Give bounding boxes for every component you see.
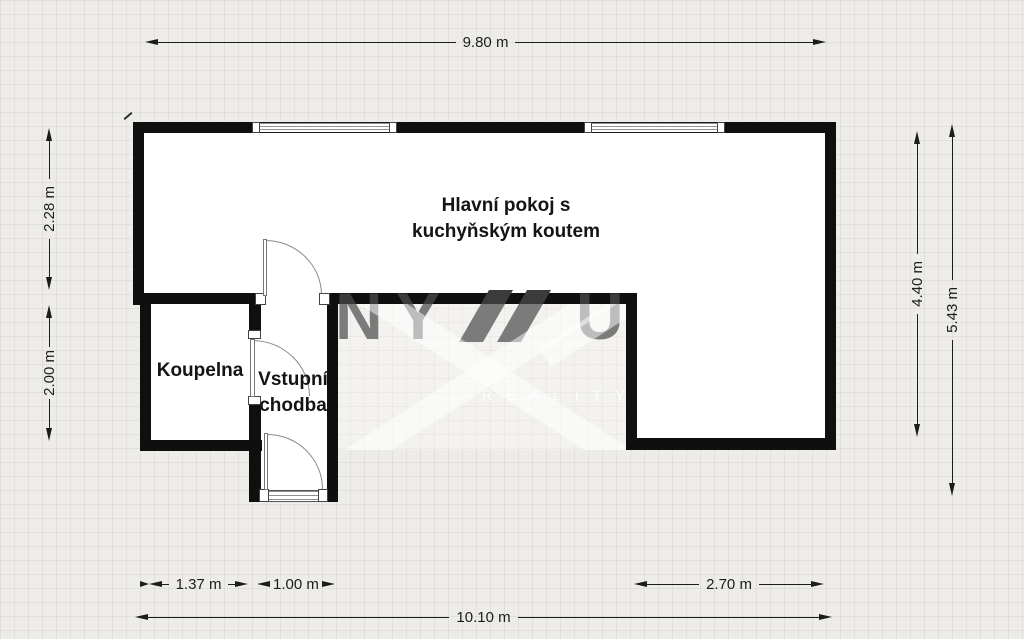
- wall-bathroom-top: [133, 293, 259, 304]
- wall-extension-bottom: [626, 438, 836, 450]
- floorplan-canvas: N Y U REALITY Hlavní pokoj s kuchyňským …: [0, 0, 1024, 639]
- dim-extension-width: 2.70 m: [634, 577, 824, 591]
- hall-main-door-frame-right: [319, 293, 330, 305]
- arrow-up-icon: [949, 124, 955, 137]
- watermark-white-overlay: [338, 304, 626, 450]
- window-1-left-jamb: [252, 122, 260, 133]
- entry-door-frame-left: [259, 489, 269, 502]
- dim-left-upper-label: 2.28 m: [41, 179, 58, 239]
- dim-bottom-width: 10.10 m: [135, 610, 832, 624]
- bathroom-door-frame-top: [248, 330, 261, 339]
- arrow-tick-icon: [140, 581, 149, 587]
- dim-left-lower: 2.00 m: [42, 305, 56, 441]
- watermark-subtext: REALITY: [482, 387, 638, 403]
- arrow-right-icon: [819, 614, 832, 620]
- dim-top-width: 9.80 m: [145, 35, 826, 49]
- window-1-right-jamb: [389, 122, 397, 133]
- hall-label-line1: Vstupní: [258, 367, 328, 393]
- window-2-left-jamb: [584, 122, 592, 133]
- dim-bathroom-width: 1.37 m: [140, 577, 248, 591]
- main-room-label-line1: Hlavní pokoj s: [412, 193, 600, 219]
- entry-door-frame-right: [318, 489, 328, 502]
- dim-right-outer: 5.43 m: [945, 124, 959, 496]
- window-2-right-jamb: [717, 122, 725, 133]
- arrow-right-icon: [322, 581, 335, 587]
- wall-bathroom-hall-lower: [249, 405, 261, 502]
- hall-main-door-leaf: [263, 239, 267, 296]
- arrow-up-icon: [46, 128, 52, 141]
- arrow-right-icon: [811, 581, 824, 587]
- main-room-extension-fill: [637, 293, 825, 438]
- hall-label-line2: chodba: [258, 393, 328, 419]
- dim-bottom-width-label: 10.10 m: [449, 609, 517, 626]
- bathroom-door-leaf: [250, 339, 255, 397]
- wall-right: [825, 122, 836, 450]
- hall-label: Vstupní chodba: [258, 367, 328, 419]
- bathroom-label: Koupelna: [157, 358, 244, 384]
- dim-extension-width-label: 2.70 m: [699, 576, 759, 593]
- arrow-left-icon: [135, 614, 148, 620]
- window-2: [585, 122, 725, 133]
- wall-extension-left: [626, 293, 637, 450]
- dim-left-upper: 2.28 m: [42, 128, 56, 290]
- arrow-up-icon: [914, 131, 920, 144]
- wall-bathroom-left: [140, 293, 151, 451]
- wall-left: [133, 122, 144, 305]
- arrow-left-icon: [145, 39, 158, 45]
- window-1: [253, 122, 397, 133]
- dim-right-outer-label: 5.43 m: [944, 280, 961, 340]
- main-room-label-line2: kuchyňským koutem: [412, 219, 600, 245]
- arrow-down-icon: [914, 424, 920, 437]
- wall-top: [133, 122, 836, 133]
- corner-tick: [124, 112, 133, 120]
- dim-top-width-label: 9.80 m: [456, 34, 516, 51]
- dim-left-lower-label: 2.00 m: [41, 347, 58, 399]
- dim-bathroom-width-label: 1.37 m: [169, 576, 229, 593]
- dim-hall-width-label: 1.00 m: [270, 576, 322, 593]
- arrow-down-icon: [46, 428, 52, 441]
- arrow-down-icon: [46, 277, 52, 290]
- main-room-label: Hlavní pokoj s kuchyňským koutem: [412, 193, 600, 245]
- arrow-up-icon: [46, 305, 52, 318]
- dim-right-inner-label: 4.40 m: [909, 254, 926, 314]
- arrow-right-icon: [235, 581, 248, 587]
- arrow-left-icon: [149, 581, 162, 587]
- dim-right-inner: 4.40 m: [910, 131, 924, 437]
- arrow-left-icon: [257, 581, 270, 587]
- dim-hall-width: 1.00 m: [257, 577, 328, 591]
- wall-bathroom-bottom: [140, 440, 262, 451]
- entry-door-leaf: [264, 433, 268, 490]
- arrow-left-icon: [634, 581, 647, 587]
- arrow-right-icon: [813, 39, 826, 45]
- arrow-down-icon: [949, 483, 955, 496]
